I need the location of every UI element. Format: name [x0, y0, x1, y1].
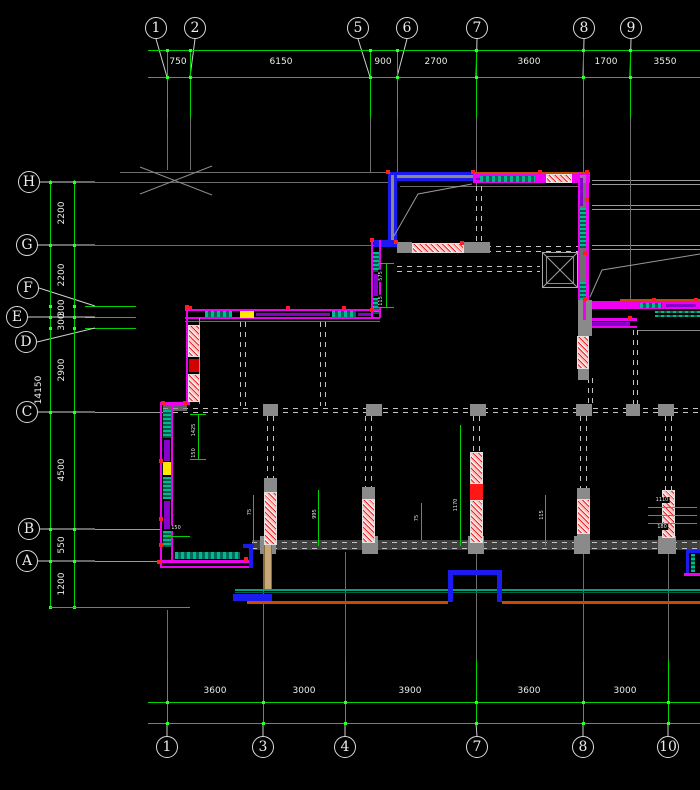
annotation-dim-line — [386, 263, 387, 307]
dim-marker — [73, 316, 76, 319]
dim-marker — [166, 722, 169, 725]
grip-point — [157, 560, 161, 564]
dim-marker — [49, 244, 52, 247]
dimension-text: 3600 — [204, 686, 227, 696]
grid-axis-line — [668, 660, 669, 723]
annotation-dim-line — [421, 503, 422, 540]
grid-bubble: 7 — [466, 17, 488, 39]
annotation-label: 150 — [170, 525, 182, 531]
grip-point — [583, 297, 587, 301]
grid-bubble: 7 — [466, 736, 488, 758]
annotation-dim-line — [168, 536, 190, 537]
dimension-text: 2200 — [57, 202, 67, 225]
dim-marker — [49, 411, 52, 414]
dim-marker — [396, 49, 399, 52]
dimension-text: 6150 — [270, 57, 293, 67]
grid-bubble: 2 — [184, 17, 206, 39]
grid-bubble: 4 — [334, 736, 356, 758]
grip-point — [583, 251, 587, 255]
grid-bubble: 1 — [145, 17, 167, 39]
dim-marker — [475, 722, 478, 725]
dim-marker — [475, 701, 478, 704]
bubble-leaders-overlay — [0, 0, 700, 790]
grid-bubble: F — [17, 277, 39, 299]
grid-bubble: G — [16, 234, 38, 256]
grid-axis-line — [190, 50, 191, 118]
dim-marker — [189, 76, 192, 79]
grip-point — [244, 557, 248, 561]
dim-marker — [582, 701, 585, 704]
dim-marker — [667, 701, 670, 704]
dim-marker — [262, 701, 265, 704]
annotation-dim-line — [648, 515, 697, 516]
dimension-text: 3000 — [293, 686, 316, 696]
grip-point — [183, 401, 187, 405]
grid-bubble: 1 — [156, 736, 178, 758]
dim-marker — [49, 305, 52, 308]
dim-marker — [582, 49, 585, 52]
grid-bubble: 8 — [572, 736, 594, 758]
dimension-text: 3600 — [518, 57, 541, 67]
annotation-label: 1110 — [655, 497, 670, 503]
annotation-label: 115 — [539, 509, 545, 521]
grip-point — [585, 197, 589, 201]
dim-line — [148, 702, 700, 703]
grid-axis-line — [476, 660, 477, 723]
dimension-text: 2700 — [425, 57, 448, 67]
bubble-leader-line — [156, 39, 167, 77]
grip-point — [159, 543, 163, 547]
dim-marker — [189, 49, 192, 52]
dim-marker — [166, 701, 169, 704]
dimension-text: 2200 — [57, 264, 67, 287]
bubble-leader-line — [397, 39, 407, 77]
dim-marker — [475, 76, 478, 79]
dimension-text: 550 — [57, 536, 67, 553]
dim-marker — [582, 76, 585, 79]
dimension-text: 3000 — [614, 686, 637, 696]
dim-marker — [344, 722, 347, 725]
dim-marker — [166, 49, 169, 52]
bubble-leader-line — [39, 288, 95, 306]
dim-marker — [582, 722, 585, 725]
annotation-dim-line — [545, 495, 546, 546]
dim-marker — [49, 327, 52, 330]
dim-marker — [73, 327, 76, 330]
dim-marker — [262, 722, 265, 725]
dim-marker — [369, 76, 372, 79]
grid-bubble: A — [16, 550, 38, 572]
grid-axis-line — [263, 660, 264, 723]
annotation-dim-line — [198, 414, 199, 459]
dimension-text: 1700 — [595, 57, 618, 67]
annotation-label: 150 — [191, 447, 197, 459]
grid-bubble: H — [18, 171, 40, 193]
grid-bubble: D — [15, 331, 37, 353]
grip-point — [628, 316, 632, 320]
dim-marker — [396, 76, 399, 79]
annotation-label: 995 — [312, 508, 318, 520]
bubble-leader-line — [358, 39, 370, 77]
annotation-dim-line — [648, 507, 697, 508]
dim-marker — [49, 528, 52, 531]
grid-bubble: B — [18, 518, 40, 540]
grid-axis-line — [583, 50, 584, 118]
grid-axis-line — [630, 50, 631, 118]
grid-bubble: 5 — [347, 17, 369, 39]
annotation-label: 75 — [247, 508, 253, 516]
cad-viewport[interactable]: 1256789750615090027003600170035501347810… — [0, 0, 700, 790]
grip-point — [394, 240, 398, 244]
annotation-dim-line — [190, 459, 206, 460]
dimension-text: 3550 — [654, 57, 677, 67]
grip-point — [652, 298, 656, 302]
dim-line — [148, 50, 700, 51]
dim-marker — [166, 76, 169, 79]
grip-point — [538, 170, 542, 174]
grid-axis-line — [345, 660, 346, 723]
grip-point — [188, 306, 192, 310]
overall-dimension-text: 14150 — [34, 376, 44, 405]
grip-point — [159, 459, 163, 463]
grip-point — [286, 306, 290, 310]
grid-bubble: 10 — [657, 736, 679, 758]
grid-axis-line — [167, 660, 168, 723]
annotation-label: 575 — [378, 270, 384, 282]
grip-point — [471, 170, 475, 174]
dim-marker — [73, 181, 76, 184]
dimension-text: 2900 — [57, 359, 67, 382]
dim-line — [148, 723, 700, 724]
grid-bubble: 8 — [573, 17, 595, 39]
grip-point — [161, 401, 165, 405]
annotation-dim-line — [318, 490, 319, 546]
dimension-text: 1200 — [57, 573, 67, 596]
dim-marker — [667, 722, 670, 725]
grid-axis-line — [370, 50, 371, 118]
dim-marker — [629, 49, 632, 52]
grip-point — [370, 238, 374, 242]
annotation-label: 1425 — [191, 423, 197, 438]
dim-marker — [475, 49, 478, 52]
grid-bubble: E — [6, 306, 28, 328]
grid-axis-line — [397, 50, 398, 118]
dimension-text: 300 — [57, 313, 67, 330]
dimension-text: 3900 — [399, 686, 422, 696]
grip-point — [694, 298, 698, 302]
annotation-label: 1170 — [453, 498, 459, 513]
annotation-dim-line — [253, 495, 254, 543]
grip-point — [342, 306, 346, 310]
dim-marker — [49, 181, 52, 184]
grip-point — [386, 170, 390, 174]
grip-point — [585, 170, 589, 174]
grip-point — [159, 517, 163, 521]
grid-axis-line — [167, 50, 168, 118]
dim-marker — [73, 305, 76, 308]
grip-point — [370, 308, 374, 312]
dim-marker — [629, 76, 632, 79]
grid-axis-line — [476, 50, 477, 118]
grid-bubble: 3 — [252, 736, 274, 758]
annotation-dim-line — [378, 263, 394, 264]
dim-marker — [73, 411, 76, 414]
annotation-dim-line — [378, 307, 394, 308]
grid-axis-line — [583, 660, 584, 723]
grip-point — [460, 241, 464, 245]
annotation-dim-line — [190, 414, 206, 415]
grid-bubble: 9 — [620, 17, 642, 39]
grid-bubble: 6 — [396, 17, 418, 39]
annotation-dim-line — [460, 425, 461, 546]
dim-marker — [73, 560, 76, 563]
dim-marker — [49, 560, 52, 563]
dimension-text: 750 — [169, 57, 186, 67]
dim-marker — [369, 49, 372, 52]
dimension-text: 3600 — [518, 686, 541, 696]
annotation-label: 115 — [378, 295, 384, 307]
dim-line — [148, 77, 700, 78]
dimension-text: 4500 — [57, 459, 67, 482]
dim-marker — [49, 316, 52, 319]
dim-line — [50, 607, 190, 608]
dim-marker — [344, 701, 347, 704]
annotation-label: 75 — [414, 514, 420, 522]
annotation-label: 180 — [656, 524, 668, 530]
dim-marker — [73, 244, 76, 247]
dim-marker — [73, 528, 76, 531]
dimension-text: 900 — [374, 57, 391, 67]
